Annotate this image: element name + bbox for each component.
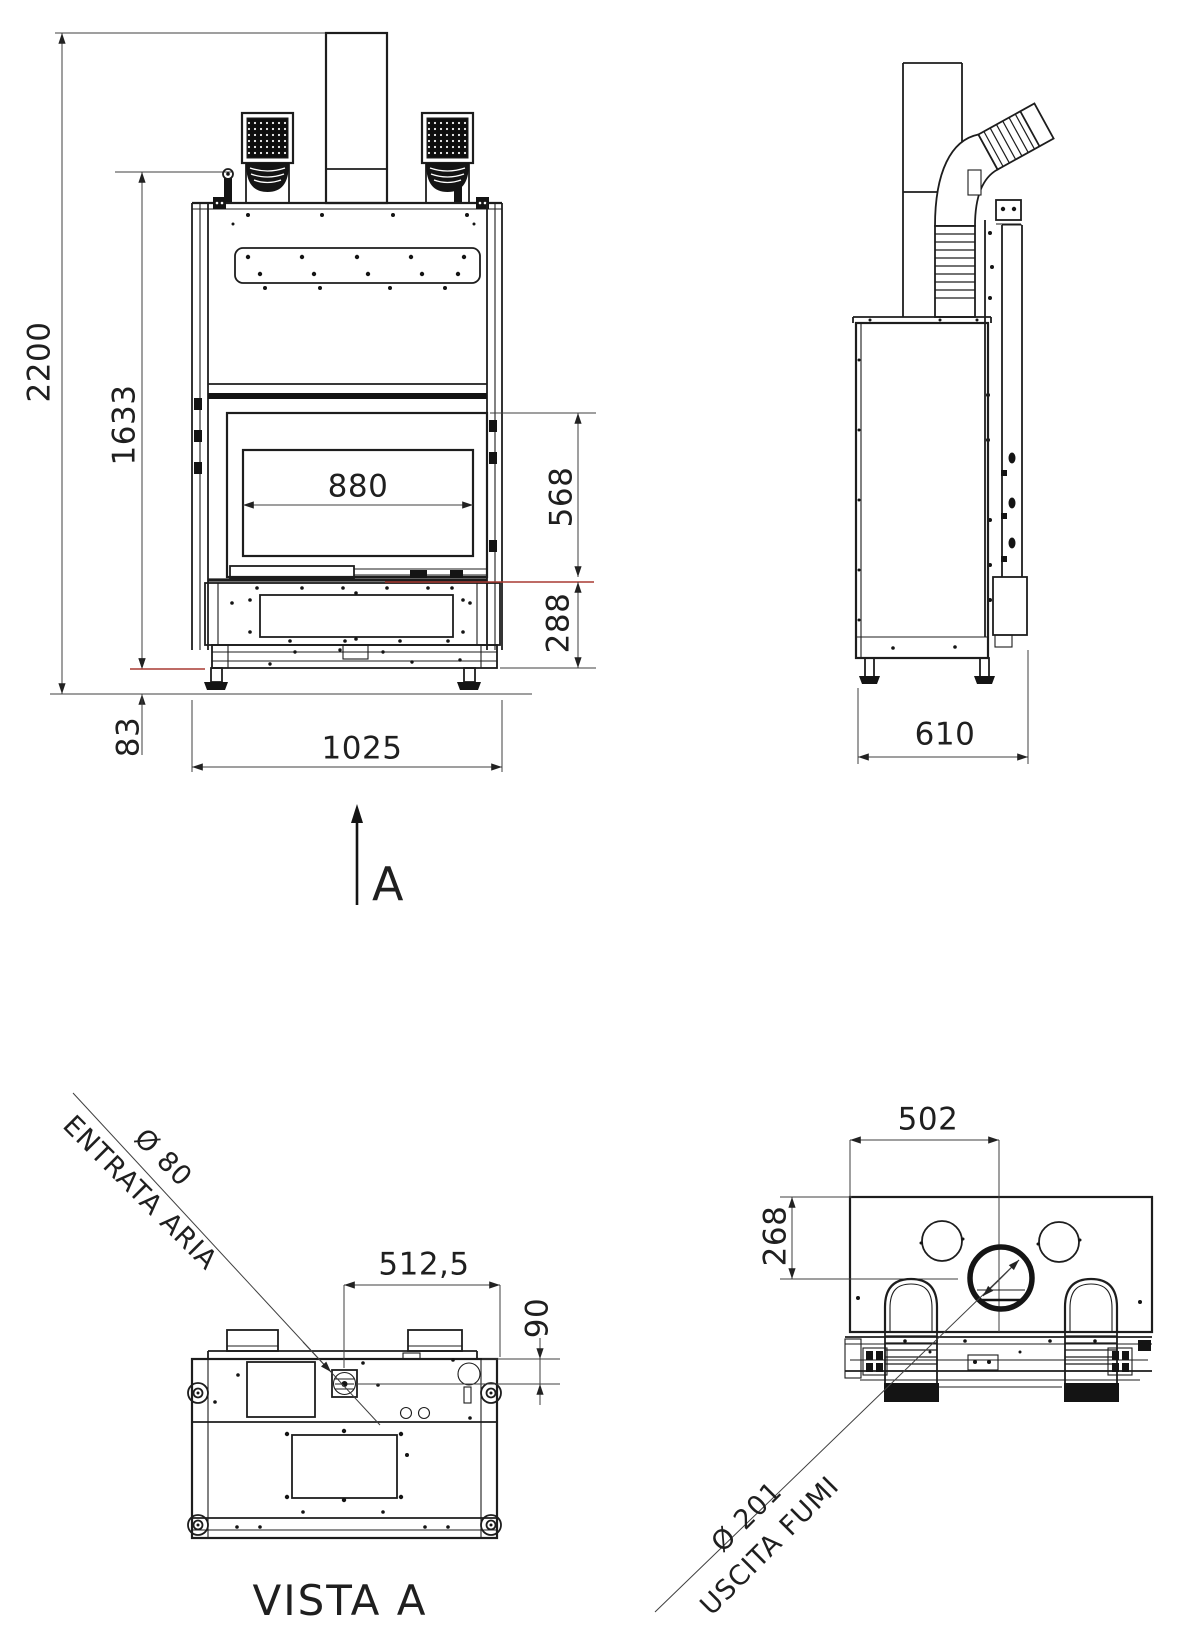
- bottom-air-inlet-x-dim: 512,5: [378, 1250, 469, 1281]
- front-total-height-dim: 2200: [25, 322, 56, 403]
- front-base-height-dim: 288: [544, 593, 575, 654]
- front-glass-height-dim: 568: [547, 467, 578, 528]
- front-total-width-dim: 1025: [322, 734, 403, 765]
- technical-drawing-sheet: 2200 1633 880 568 288 83 1025 A 610 502 …: [0, 0, 1184, 1650]
- view-direction-arrow-label: A: [372, 861, 404, 907]
- front-upper-height-dim: 1633: [110, 385, 141, 466]
- drawing-linework: [0, 0, 1184, 1650]
- front-view-linework: [50, 33, 596, 905]
- rear-flue-offset-y-dim: 268: [761, 1206, 792, 1267]
- rear-flue-offset-x-dim: 502: [898, 1105, 959, 1136]
- bottom-air-inlet-y-dim: 90: [523, 1298, 554, 1338]
- side-view-linework: [853, 63, 1054, 764]
- front-glass-width-dim: 880: [328, 472, 389, 503]
- side-depth-dim: 610: [915, 720, 976, 751]
- front-feet-height-dim: 83: [114, 717, 145, 757]
- bottom-view-title: VISTA A: [253, 1580, 428, 1622]
